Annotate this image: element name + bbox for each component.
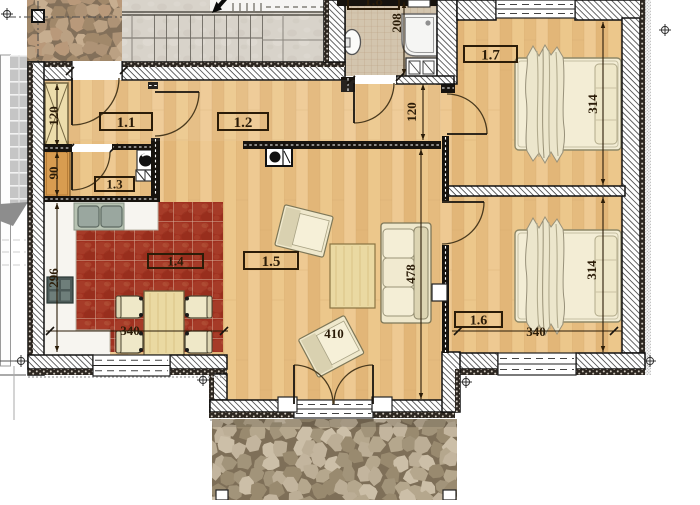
svg-text:340: 340 — [120, 323, 140, 338]
svg-text:314: 314 — [585, 94, 600, 114]
svg-text:1.6: 1.6 — [470, 314, 488, 329]
svg-text:1.3: 1.3 — [106, 177, 123, 192]
svg-text:90: 90 — [46, 167, 61, 180]
svg-text:340: 340 — [526, 324, 546, 339]
svg-text:410: 410 — [324, 326, 344, 341]
svg-text:478: 478 — [403, 264, 418, 284]
svg-text:120: 120 — [46, 106, 61, 126]
svg-text:1.1: 1.1 — [117, 115, 136, 131]
svg-text:314: 314 — [584, 260, 599, 280]
svg-text:208: 208 — [389, 13, 404, 33]
svg-text:1.5: 1.5 — [262, 254, 281, 270]
svg-text:296: 296 — [46, 268, 61, 288]
svg-text:1.4: 1.4 — [167, 254, 184, 269]
svg-text:120: 120 — [404, 102, 419, 122]
svg-text:1.8: 1.8 — [364, 0, 383, 9]
svg-text:1.7: 1.7 — [481, 47, 500, 63]
svg-text:1.2: 1.2 — [234, 115, 253, 131]
